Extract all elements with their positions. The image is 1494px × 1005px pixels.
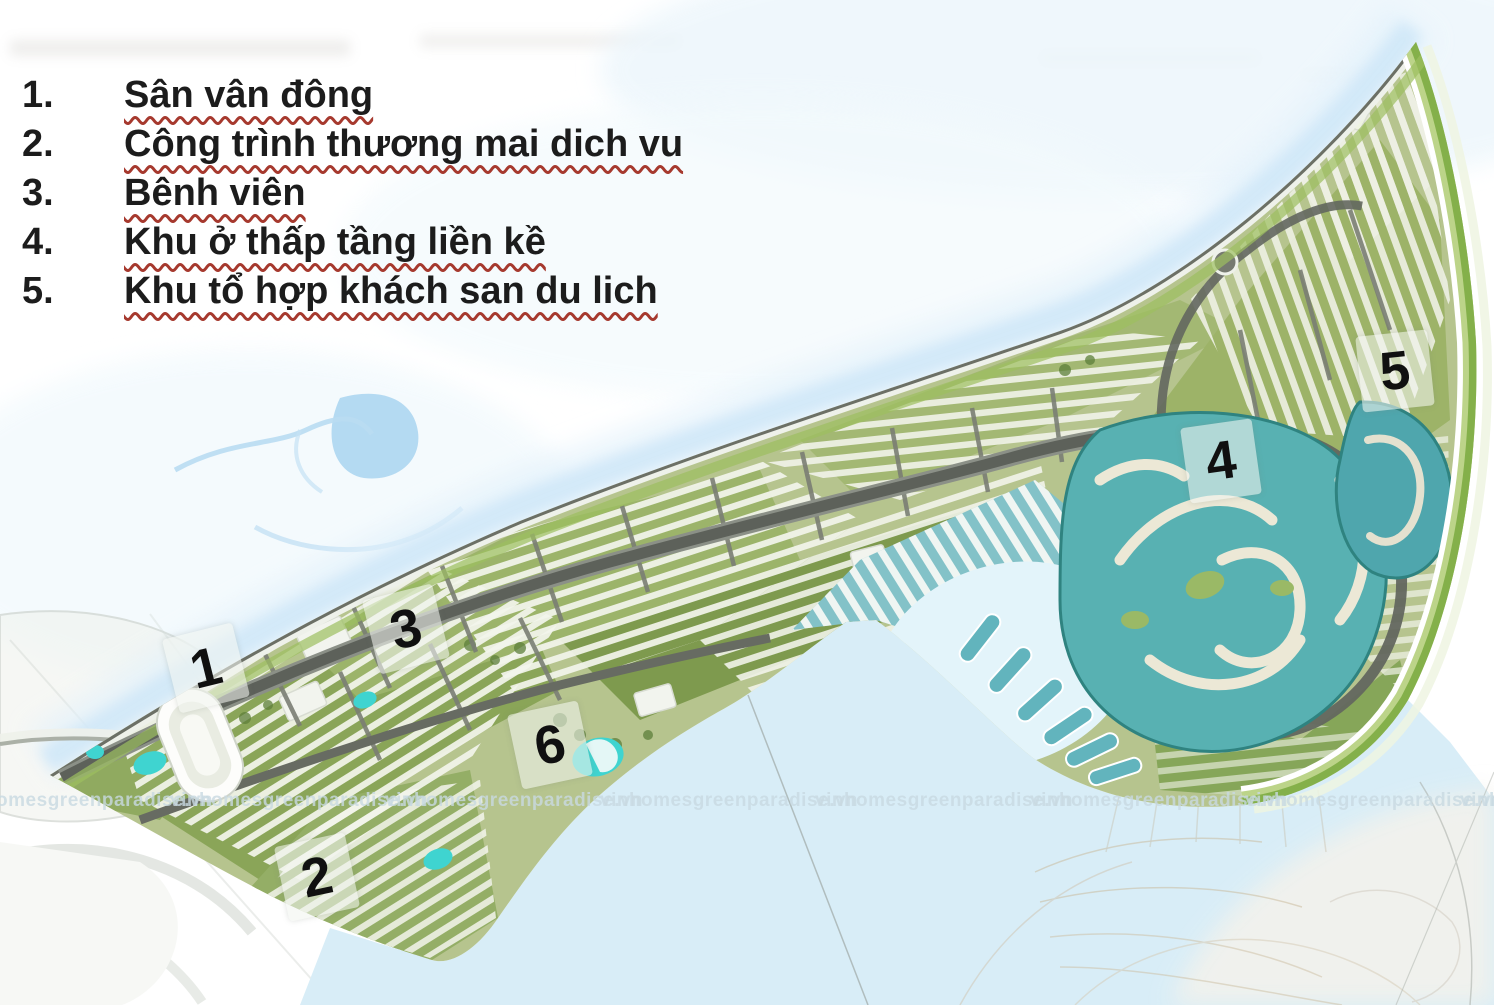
legend-item-label: Khu ở thấp tầng liền kề — [124, 221, 546, 264]
map-marker-number: 4 — [1202, 432, 1239, 490]
map-marker-number: 1 — [185, 638, 227, 698]
legend-item: 3. Bênh viên — [22, 172, 683, 221]
map-marker-number: 6 — [530, 715, 571, 774]
legend-item-label: Bênh viên — [124, 172, 306, 215]
watermark-text: vinhomesgreenparadise.vn — [1460, 790, 1494, 812]
legend-item-number: 4. — [22, 221, 124, 264]
map-marker-number: 5 — [1377, 343, 1413, 400]
legend-item-number: 1. — [22, 74, 124, 117]
map-marker: 2 — [274, 832, 360, 921]
map-marker-number: 3 — [385, 599, 427, 659]
legend-item-label: Sân vân đông — [124, 74, 373, 117]
masterplan-screenshot: { "legend": { "items": [ {"num": "1.", "… — [0, 0, 1494, 1005]
legend-item-number: 2. — [22, 123, 124, 166]
legend-item-label: Khu tổ hợp khách san du lich — [124, 270, 658, 313]
legend-item: 5. Khu tổ hợp khách san du lich — [22, 270, 683, 319]
legend-item: 1. Sân vân đông — [22, 74, 683, 123]
legend-item: 2. Công trình thương mai dich vu — [22, 123, 683, 172]
legend-item-label: Công trình thương mai dich vu — [124, 123, 683, 166]
map-marker: 4 — [1180, 418, 1262, 503]
map-marker: 6 — [507, 700, 593, 789]
map-marker-number: 2 — [297, 847, 338, 906]
legend-item-number: 5. — [22, 270, 124, 313]
legend-item-number: 3. — [22, 172, 124, 215]
legend-item: 4. Khu ở thấp tầng liền kề — [22, 221, 683, 270]
legend: 1. Sân vân đông 2. Công trình thương mai… — [22, 74, 683, 319]
watermark-text: vinhomesgreenparadise.vn — [1245, 790, 1494, 812]
map-marker: 5 — [1355, 329, 1435, 412]
